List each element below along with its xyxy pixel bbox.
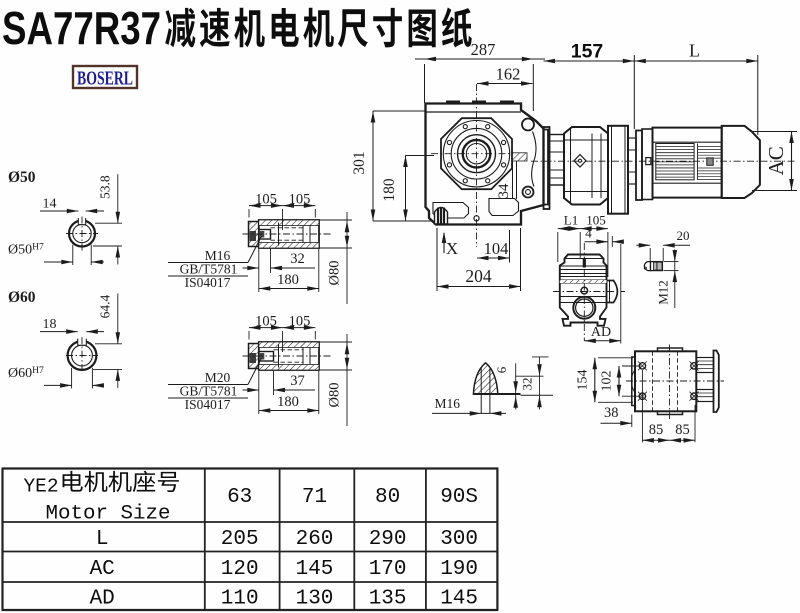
svg-text:4: 4	[585, 226, 592, 241]
svg-text:M16: M16	[435, 396, 461, 411]
svg-text:85: 85	[675, 422, 690, 438]
svg-text:L: L	[96, 528, 109, 551]
svg-text:20: 20	[677, 228, 690, 243]
svg-text:145: 145	[440, 588, 478, 611]
svg-text:301: 301	[351, 151, 368, 174]
svg-text:YE2: YE2	[23, 476, 58, 498]
svg-text:157: 157	[571, 41, 604, 63]
svg-text:37: 37	[290, 373, 305, 389]
svg-text:287: 287	[471, 40, 496, 59]
svg-text:162: 162	[496, 65, 521, 84]
svg-text:180: 180	[381, 178, 398, 202]
svg-text:Ø80: Ø80	[327, 261, 343, 286]
svg-text:110: 110	[221, 588, 259, 611]
svg-text:Motor Size: Motor Size	[46, 503, 171, 526]
svg-text:X: X	[446, 239, 458, 258]
svg-text:180: 180	[277, 272, 299, 288]
svg-text:IS04017: IS04017	[185, 397, 231, 412]
svg-text:154: 154	[576, 370, 591, 391]
svg-text:Ø80: Ø80	[327, 383, 343, 408]
svg-text:290: 290	[369, 528, 407, 551]
svg-text:AD: AD	[591, 325, 611, 340]
svg-text:Ø50: Ø50	[8, 169, 36, 186]
svg-text:190: 190	[440, 558, 478, 581]
svg-text:204: 204	[465, 266, 492, 286]
svg-text:AC: AC	[764, 146, 788, 175]
svg-text:145: 145	[296, 558, 334, 581]
svg-text:IS04017: IS04017	[185, 275, 231, 290]
svg-text:34: 34	[496, 183, 512, 199]
svg-text:32: 32	[520, 378, 535, 391]
svg-text:80: 80	[375, 486, 400, 509]
svg-text:BOSERL: BOSERL	[77, 68, 133, 89]
svg-text:64.4: 64.4	[98, 294, 113, 318]
svg-text:90S: 90S	[440, 486, 478, 509]
svg-text:32: 32	[290, 251, 305, 267]
svg-text:18: 18	[43, 317, 57, 332]
svg-text:105: 105	[289, 192, 311, 208]
svg-text:AD: AD	[90, 588, 115, 611]
svg-text:102: 102	[600, 371, 615, 392]
svg-text:Ø60: Ø60	[8, 289, 36, 306]
svg-text:SA77R37: SA77R37	[2, 2, 161, 54]
svg-text:205: 205	[221, 528, 259, 551]
svg-text:85: 85	[649, 422, 664, 438]
svg-text:170: 170	[369, 558, 407, 581]
svg-text:260: 260	[296, 528, 334, 551]
svg-text:38: 38	[604, 405, 619, 421]
svg-text:105: 105	[255, 192, 277, 208]
svg-text:120: 120	[221, 558, 259, 581]
svg-text:300: 300	[440, 528, 478, 551]
svg-text:135: 135	[369, 588, 407, 611]
svg-text:14: 14	[43, 197, 57, 212]
svg-text:L1: L1	[564, 213, 578, 228]
svg-text:130: 130	[296, 588, 334, 611]
svg-text:104: 104	[484, 239, 509, 258]
svg-text:AC: AC	[90, 558, 115, 581]
svg-text:L: L	[689, 41, 700, 61]
svg-text:71: 71	[302, 486, 327, 509]
svg-text:180: 180	[277, 394, 299, 410]
svg-text:63: 63	[227, 486, 252, 509]
svg-text:53.8: 53.8	[98, 175, 113, 199]
svg-text:6: 6	[494, 366, 509, 373]
svg-text:M12: M12	[656, 280, 671, 305]
svg-text:105: 105	[289, 314, 311, 330]
svg-text:105: 105	[255, 314, 277, 330]
